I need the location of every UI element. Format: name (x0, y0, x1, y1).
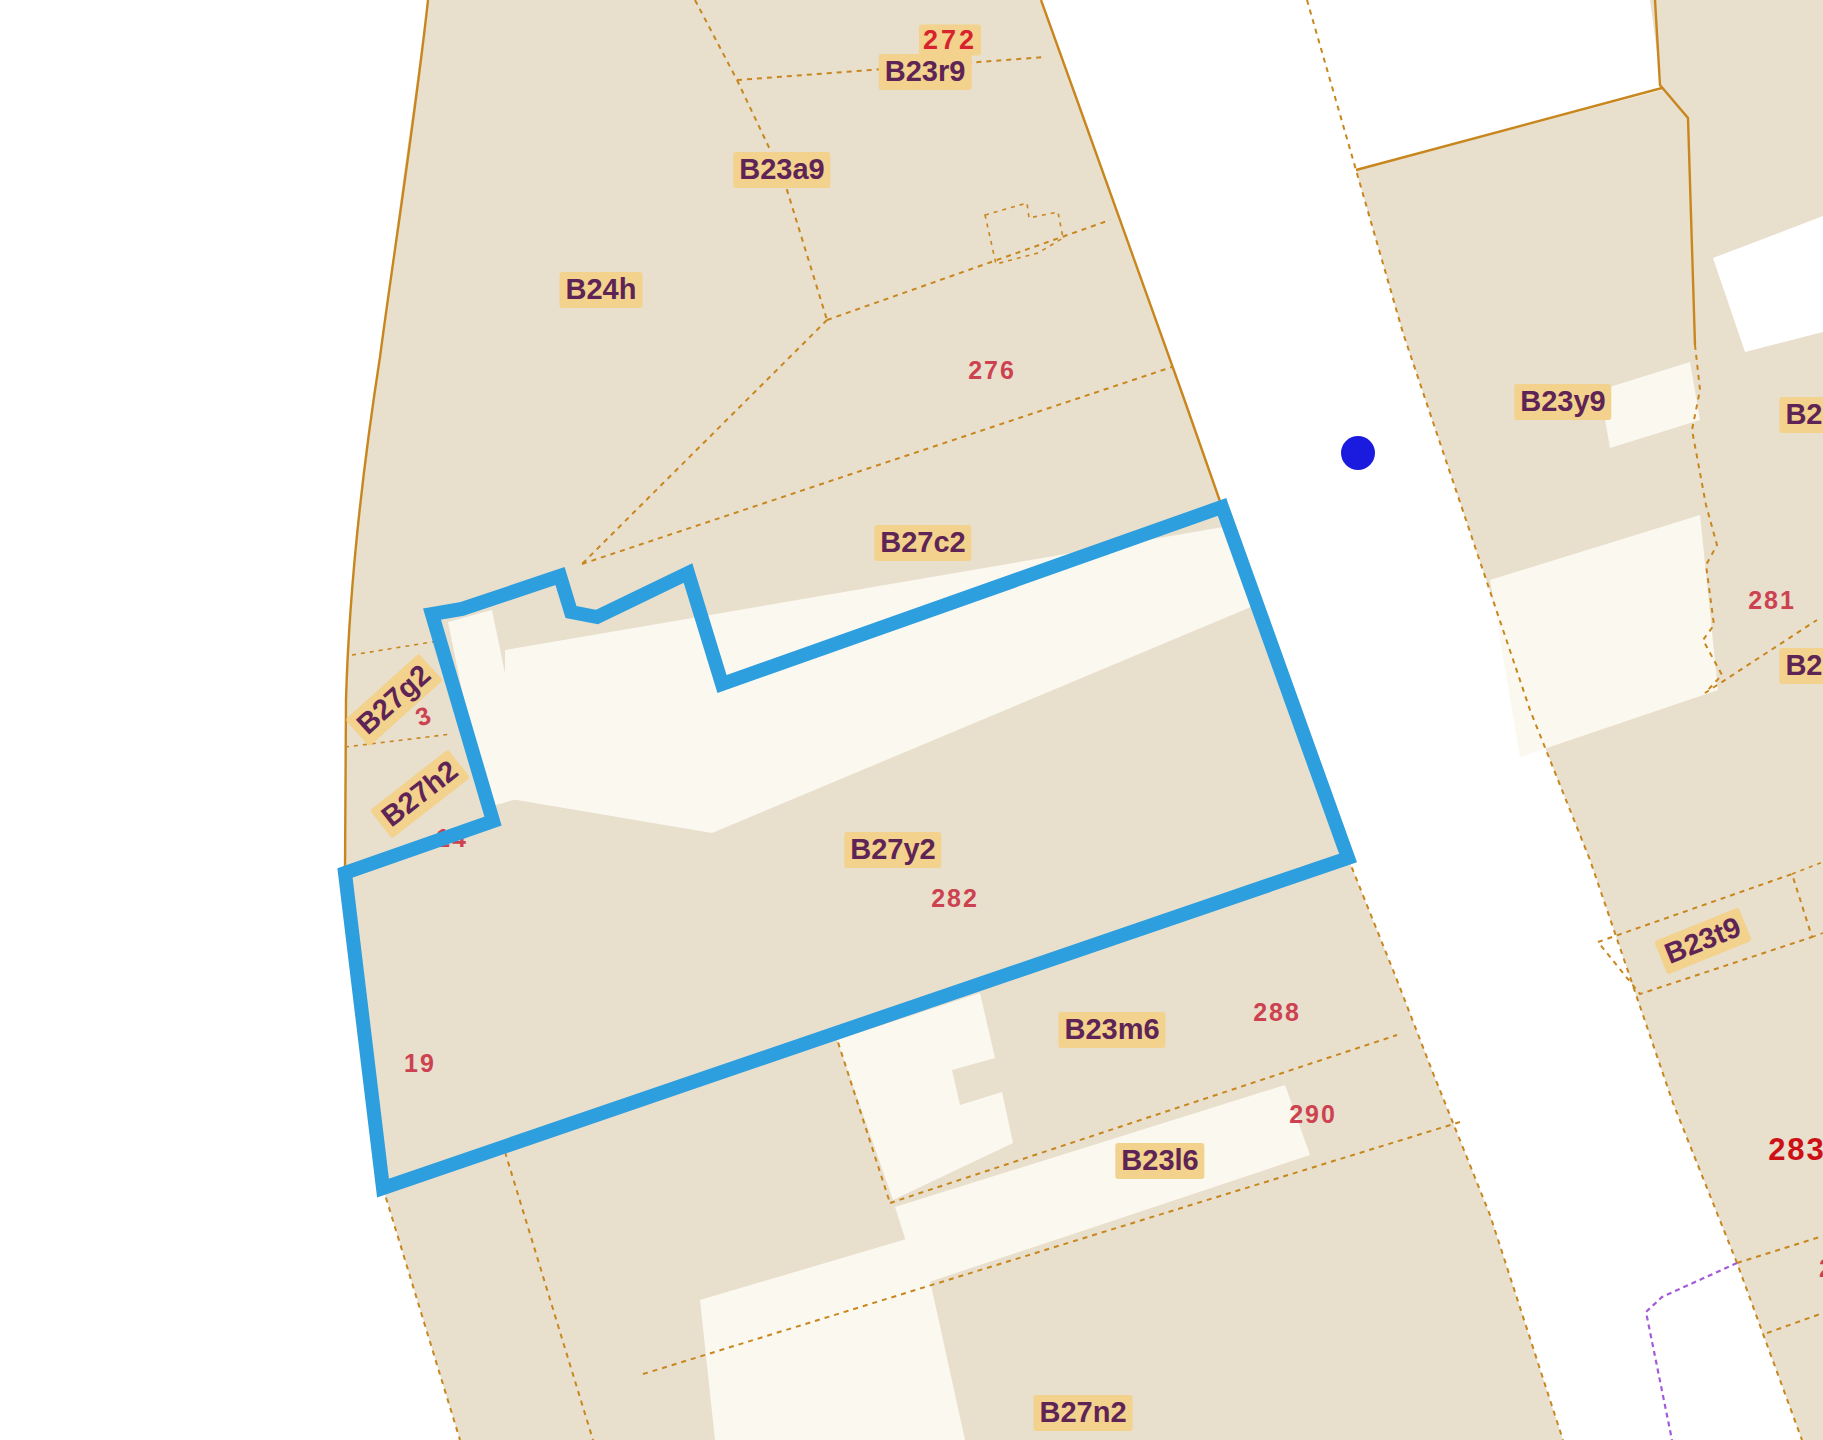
parcel-label-B23m6-13: B23m6 (1058, 1012, 1165, 1048)
parcel-label-B23a9-2: B23a9 (733, 152, 830, 188)
parcel-label-B23y9-18: B23y9 (1514, 384, 1611, 420)
parcel-number-276-4: 276 (968, 356, 1016, 385)
parcel-number-272-0: 272 (919, 25, 981, 56)
parcel-number-283-23: 283 (1768, 1132, 1823, 1168)
parcel-label-B23l6-16: B23l6 (1115, 1143, 1204, 1179)
parcel-number-14-9: 14 (436, 824, 468, 853)
parcel-number-281-20: 281 (1748, 586, 1796, 615)
parcel-label-B23-19: B23 (1779, 397, 1823, 433)
parcel-number-2-24: 2 (1819, 1254, 1823, 1283)
parcel-label-B27c2-5: B27c2 (874, 525, 971, 561)
parcel-number-3-7: 3 (412, 700, 437, 733)
parcel-label-B23-21: B23 (1779, 648, 1823, 684)
parcel-number-282-11: 282 (931, 884, 979, 913)
parcel-label-B23r9-1: B23r9 (879, 54, 972, 90)
parcel-label-B27y2-10: B27y2 (844, 832, 941, 868)
parcel-label-B27g2-6: B27g2 (345, 653, 443, 746)
parcel-number-290-15: 290 (1289, 1100, 1337, 1129)
parcel-number-288-14: 288 (1253, 998, 1301, 1027)
parcel-number-19-12: 19 (404, 1049, 436, 1078)
map-canvas[interactable]: 272B23r9B23a9B24h276B27c2B27g23B27h214B2… (0, 0, 1823, 1440)
parcel-label-B24h-3: B24h (560, 272, 643, 308)
parcel-label-B23t9-22: B23t9 (1654, 907, 1752, 974)
parcel-label-B27n2-17: B27n2 (1033, 1395, 1132, 1431)
label-layer: 272B23r9B23a9B24h276B27c2B27g23B27h214B2… (0, 0, 1823, 1440)
